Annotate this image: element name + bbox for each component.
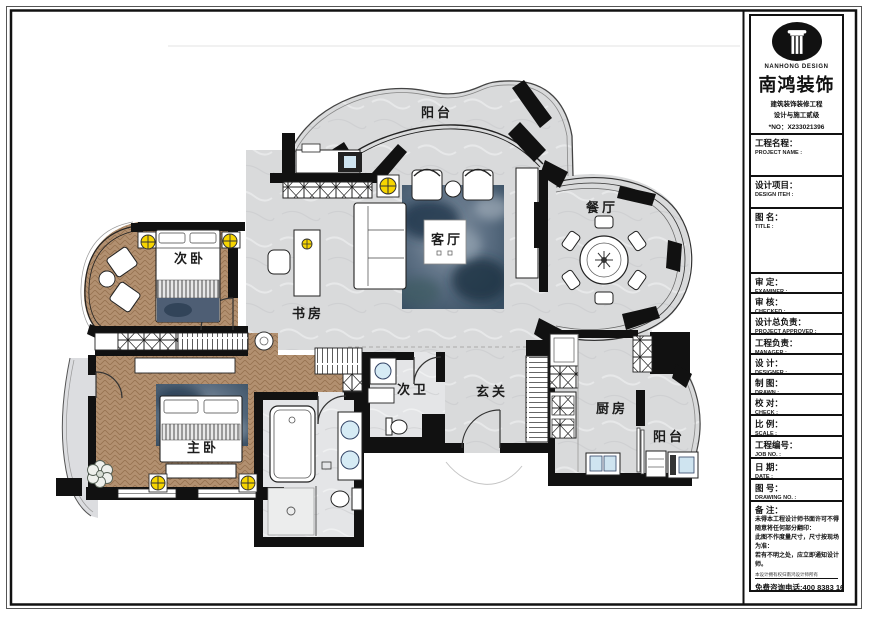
room-label-bath-second: 次卫 (397, 382, 429, 397)
service-balcony-fixtures (646, 451, 698, 478)
field-project-name: 工程名程： PROJECT NAME : (751, 135, 842, 177)
master-dresser (135, 358, 235, 373)
hotline: 免费咨询电话:400 8383 168 (755, 578, 838, 590)
desk-chair (268, 250, 290, 274)
field-checked: 审 核： CHECKED : (751, 294, 842, 314)
bed-bench (166, 464, 236, 478)
company-logo-section: NANHONG DESIGN 南鸿装饰 建筑装饰装修工程 设计与施工贰级 *NO… (751, 16, 842, 135)
field-label-cn: 审 核： (755, 296, 838, 308)
room-label-study: 书房 (292, 306, 324, 321)
room-label-master: 主卧 (187, 440, 219, 455)
field-label-cn: 设 计： (755, 357, 838, 369)
room-label-dining: 餐厅 (585, 200, 618, 215)
stool (255, 332, 273, 350)
field-label-cn: 工程编号： (755, 439, 838, 451)
field-label-cn: 工程名程： (755, 137, 838, 149)
brand-name-cn: 南鸿装饰 (759, 71, 835, 97)
room-label-bedroom-second: 次卧 (174, 251, 206, 266)
room-label-kitchen: 厨房 (596, 401, 628, 416)
field-label-cn: 审 定： (755, 276, 838, 288)
drawing-sheet: { "plan": { "rooms": [ {"id": "balcony-t… (0, 0, 895, 633)
note-line: 此图不作度量尺寸，尺寸按现场 (755, 534, 838, 543)
company-logo (772, 22, 822, 61)
closet-row (118, 333, 178, 350)
title-block: NANHONG DESIGN 南鸿装饰 建筑装饰装修工程 设计与施工贰级 *NO… (749, 14, 844, 592)
room-label-balcony-service: 阳台 (653, 429, 685, 444)
sink-icon (341, 421, 359, 439)
ceiling-light-icon (151, 476, 165, 490)
field-label-en: PROJECT NAME : (755, 150, 838, 156)
shower-area (268, 488, 314, 535)
field-label-cn: 图 号： (755, 482, 838, 494)
shoe-cabinet (526, 356, 548, 442)
field-scale: 比 例： SCALE : (751, 416, 842, 437)
field-label-en: TITLE : (755, 224, 838, 230)
dining-chair (595, 292, 613, 304)
field-design-item: 设计项目： DESIGN ITEH : (751, 177, 842, 209)
field-label-cn: 日 期： (755, 461, 838, 473)
field-label-cn: 制 图： (755, 377, 838, 389)
field-designer: 设 计： DESIGNER : (751, 355, 842, 375)
dining-chair (595, 216, 613, 228)
round-table (445, 181, 461, 197)
field-label-cn: 工程负责： (755, 337, 838, 349)
wardrobe-hangers (178, 333, 248, 350)
column-icon (780, 25, 814, 59)
note-line: 若有不明之处，应立即通知设计 (755, 552, 838, 561)
sink-icon (375, 363, 391, 379)
field-label-cn: 比 例： (755, 418, 838, 430)
field-label-en: DESIGN ITEH : (755, 192, 838, 198)
sofa (354, 203, 406, 289)
ceiling-light-icon (241, 476, 255, 490)
field-label-cn: 设计项目： (755, 179, 838, 191)
room-label-living: 客厅 (431, 232, 463, 247)
sink-icon (341, 451, 359, 469)
field-manager: 工程负责： MANAGER : (751, 335, 842, 355)
plant-icon (88, 461, 113, 488)
sliding-door (637, 428, 640, 472)
field-check: 校 对： CHECK : (751, 395, 842, 416)
master-wardrobe (315, 348, 362, 374)
notes-title: 备 注： (755, 504, 838, 516)
ceiling-light-icon (302, 239, 312, 249)
lounge-chair (412, 170, 442, 201)
ceiling-light-icon (223, 234, 237, 248)
field-label-cn: 校 对： (755, 397, 838, 409)
field-project-approved: 设计总负责： PROJECT APPROVED : (751, 314, 842, 335)
note-line: 为准： (755, 543, 838, 552)
entry-cabinet-row (283, 182, 372, 198)
brand-name-en: NANHONG DESIGN (764, 64, 828, 70)
note-line: 师。 (755, 561, 838, 570)
field-date: 日 期： DATE : (751, 459, 842, 480)
lounge-chair (463, 170, 493, 201)
field-drawn: 制 图： DRAWN : (751, 375, 842, 395)
balcony-cabinet (646, 451, 666, 477)
cert-line-1: 建筑装饰装修工程 (771, 98, 823, 108)
field-examiner: 审 定： EXAMINER : (751, 274, 842, 294)
tv-icon (534, 202, 539, 248)
entry-step-line (446, 462, 522, 484)
toilet-icon (391, 420, 407, 434)
side-table (99, 271, 115, 287)
field-drawing-no: 图 号： DRAWING NO. : (751, 480, 842, 502)
ceiling-light-icon (377, 175, 399, 197)
license-no: *NO：X233021396 (769, 121, 825, 131)
master-bedroom-furniture (149, 384, 257, 492)
field-label-cn: 图 名： (755, 211, 838, 223)
room-label-balcony-top: 阳台 (421, 105, 453, 120)
field-label-cn: 设计总负责： (755, 316, 838, 328)
toilet-icon (331, 491, 349, 507)
field-title: 图 名： TITLE : (751, 209, 842, 274)
room-label-foyer: 玄关 (476, 384, 508, 399)
note-line: 随意将任何部分翻印： (755, 525, 838, 534)
ceiling-light-icon (141, 235, 155, 249)
note-line: 未得本工程设计师书面许可不得 (755, 516, 838, 525)
cert-line-2: 设计与施工贰级 (774, 109, 820, 119)
field-job-no: 工程编号： JOB NO. : (751, 437, 842, 459)
field-label-en: DRAWING NO. : (755, 495, 838, 501)
field-label-en: JOB NO. : (755, 452, 838, 458)
notes-section: 备 注： 未得本工程设计师书面许可不得 随意将任何部分翻印： 此图不作度量尺寸，… (751, 502, 842, 590)
